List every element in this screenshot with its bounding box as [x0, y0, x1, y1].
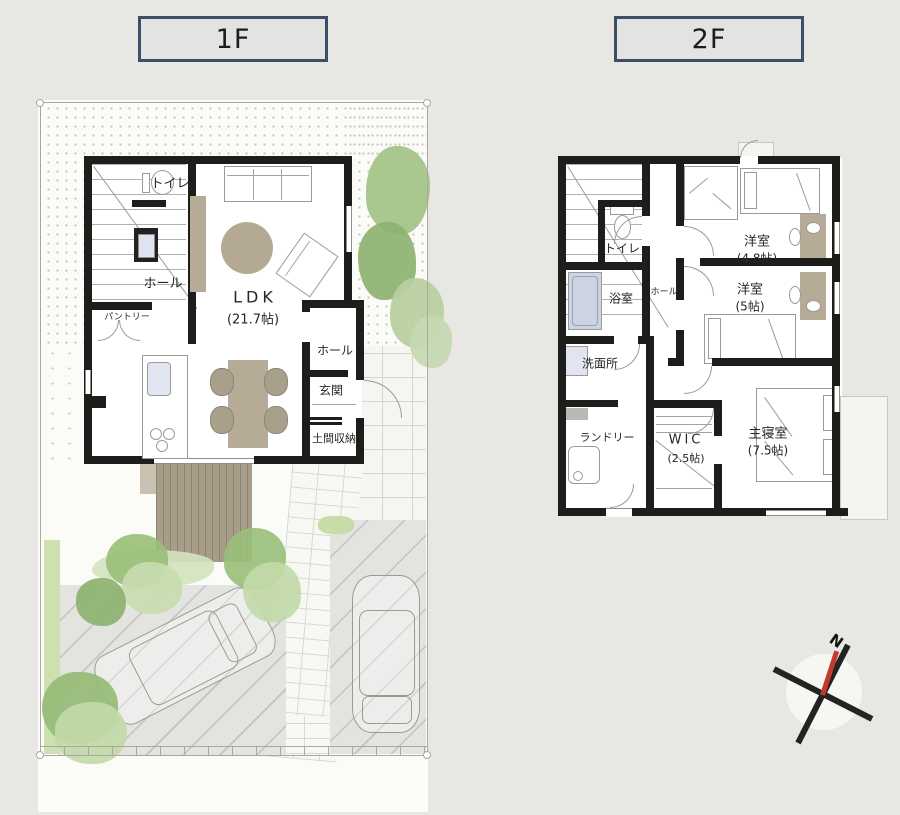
room-label-doma-storage: 土間収納	[312, 430, 356, 446]
toilet-tank-2f	[610, 206, 634, 215]
room-label-wic: WIC	[669, 433, 704, 448]
floor2-title-box: 2F	[614, 16, 804, 62]
room-label-toilet-2f: トイレ	[604, 240, 640, 257]
dining-table	[228, 360, 268, 448]
boundary-scale-ticks	[40, 746, 427, 756]
room-label-bath: 浴室	[609, 290, 633, 307]
balcony	[840, 396, 888, 520]
floor2-title: 2F	[692, 24, 727, 55]
laundry-counter	[566, 408, 588, 420]
boundary-corner	[36, 99, 44, 107]
dining-chair	[210, 368, 234, 396]
window-1f-right	[346, 206, 352, 252]
room-label-toilet-1f: トイレ	[150, 173, 189, 192]
sofa	[224, 166, 312, 202]
stove-burner	[156, 440, 168, 452]
bed-western-room2	[704, 314, 796, 364]
room-label-western1: 洋室	[744, 231, 770, 250]
room-label-pantry: パントリー	[104, 310, 149, 323]
round-rug	[221, 222, 273, 274]
floor1-title: 1F	[216, 24, 251, 55]
tv-board	[190, 196, 206, 292]
boundary-corner	[36, 751, 44, 759]
floor1-title-box: 1F	[138, 16, 328, 62]
desk-western-room1	[800, 214, 826, 262]
washstand-frame-1f	[134, 228, 158, 262]
room-label-hall-2f: ホール	[650, 285, 677, 298]
room-label-ldk: LDK	[233, 288, 277, 307]
room-label-western2: 洋室	[737, 279, 763, 298]
bathtub	[568, 272, 602, 330]
dining-chair	[264, 406, 288, 434]
dining-chair	[210, 406, 234, 434]
dining-chair	[264, 368, 288, 396]
desk-western-room2	[800, 272, 826, 320]
room-label-hall-1f: ホール	[143, 273, 182, 292]
kitchen-sink	[147, 362, 171, 396]
room-label-hall2-1f: ホール	[317, 342, 353, 359]
room-label-wic-size: (2.5帖)	[667, 450, 704, 466]
desk-chair	[789, 286, 801, 304]
room-label-ldk-size: (21.7帖)	[227, 309, 279, 328]
boundary-corner	[423, 751, 431, 759]
room-label-master-size: (7.5帖)	[748, 442, 788, 459]
room-label-laundry: ランドリー	[580, 429, 635, 445]
washing-machine	[568, 446, 600, 484]
window-1f-left	[85, 370, 91, 394]
room-label-entrance: 玄関	[319, 382, 343, 399]
stove-burner	[150, 428, 162, 440]
bed-western-room1	[740, 168, 820, 214]
room-label-washroom: 洗面所	[582, 355, 618, 372]
stove-burner	[163, 428, 175, 440]
room-label-western1-size: (4.8帖)	[737, 250, 777, 267]
floor-plan-page: 1F 2F	[0, 0, 900, 815]
desk-chair	[789, 228, 801, 246]
room-label-master: 主寝室	[748, 423, 787, 442]
room-label-western2-size: (5帖)	[736, 298, 765, 315]
boundary-corner	[423, 99, 431, 107]
toilet-tank-1f	[142, 173, 150, 193]
closet-western-room1	[684, 166, 738, 220]
